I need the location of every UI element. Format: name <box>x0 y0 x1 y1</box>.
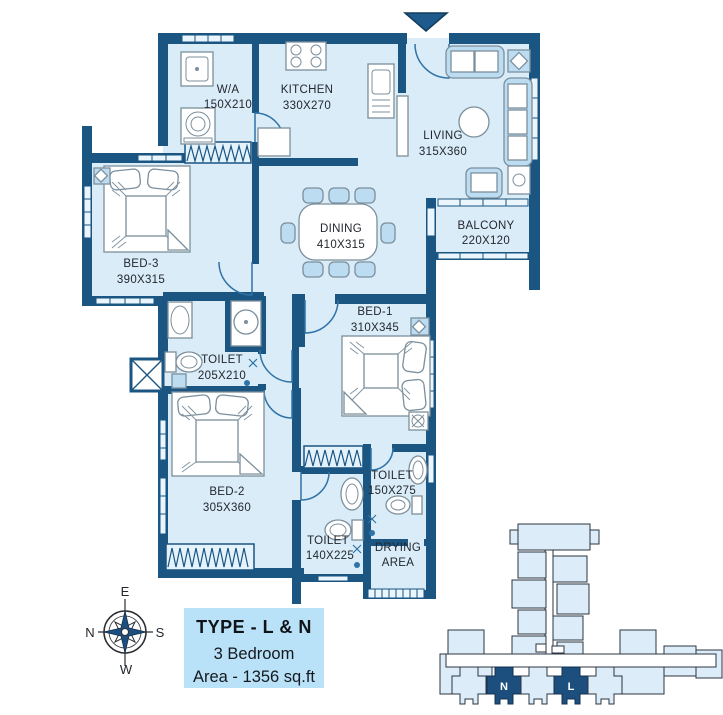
basin-icon <box>231 301 261 346</box>
room-label-bed2: BED-2 <box>209 486 244 498</box>
legend-box: TYPE - L & N 3 Bedroom Area - 1356 sq.ft <box>184 608 324 688</box>
room-label-living: LIVING <box>423 130 463 142</box>
tv-unit-icon <box>508 166 530 194</box>
room-dims-bed3: 390X315 <box>117 274 165 286</box>
floor-plan-svg: W/A 150X210 KITCHEN 330X270 LIVING 315X3… <box>0 0 723 715</box>
room-label-drying: DRYING <box>375 542 421 554</box>
chair-icon <box>329 262 349 277</box>
stove-icon <box>286 42 326 70</box>
entry-arrow-icon <box>405 13 447 31</box>
chair-icon <box>303 188 323 203</box>
wc-icon <box>386 496 422 514</box>
compass-rose: E N S W <box>85 584 164 677</box>
room-label-toilet3: TOILET <box>371 470 413 482</box>
decor-icon <box>172 374 186 388</box>
compass-west: W <box>120 662 133 677</box>
shaft-icon <box>131 359 163 391</box>
room-label-kitchen: KITCHEN <box>281 84 334 96</box>
wc-icon <box>165 352 202 372</box>
room-dims-toilet3: 150X275 <box>368 485 416 497</box>
chair-icon <box>281 223 295 243</box>
compass-north: N <box>85 625 94 640</box>
room-dims-kitchen: 330X270 <box>283 100 331 112</box>
room-dims-balcony: 220X120 <box>462 235 510 247</box>
room-dims-dining: 410X315 <box>317 239 365 251</box>
room-label-bed1: BED-1 <box>357 306 392 318</box>
legend-bedrooms: 3 Bedroom <box>214 645 295 663</box>
compass-east: E <box>121 584 130 599</box>
keyplan-label-n: N <box>500 681 508 693</box>
room-dims-wa: 150X210 <box>204 99 252 111</box>
keyplan-label-l: L <box>568 681 575 693</box>
room-label-drying2: AREA <box>382 557 415 569</box>
room-dims-toilet2: 140X225 <box>306 550 354 562</box>
legend-title: TYPE - L & N <box>196 617 312 637</box>
cabinet-icon <box>397 96 408 156</box>
bed3-furniture <box>94 166 190 252</box>
chair-icon <box>303 262 323 277</box>
room-label-toilet1: TOILET <box>201 354 243 366</box>
floor-plan-page: W/A 150X210 KITCHEN 330X270 LIVING 315X3… <box>0 0 723 715</box>
room-label-dining: DINING <box>320 223 362 235</box>
legend-area: Area - 1356 sq.ft <box>193 668 315 686</box>
sink-icon <box>168 302 192 338</box>
sink-icon <box>341 478 363 510</box>
key-plan: N L <box>440 524 722 704</box>
fan-icon <box>409 412 428 430</box>
kitchen-counter-icon <box>258 128 290 156</box>
round-table-icon <box>459 107 489 137</box>
room-dims-toilet1: 205X210 <box>198 370 246 382</box>
room-dims-living: 315X360 <box>419 146 467 158</box>
chair-icon <box>355 188 375 203</box>
chair-icon <box>355 262 375 277</box>
room-label-balcony: BALCONY <box>457 220 514 232</box>
room-label-wa: W/A <box>217 84 240 96</box>
room-label-toilet2: TOILET <box>307 535 349 547</box>
room-dims-bed2: 305X360 <box>203 502 251 514</box>
compass-south: S <box>156 625 165 640</box>
room-label-bed3: BED-3 <box>123 258 158 270</box>
room-dims-bed1: 310X345 <box>351 322 399 334</box>
chair-icon <box>329 188 349 203</box>
chair-icon <box>381 223 395 243</box>
